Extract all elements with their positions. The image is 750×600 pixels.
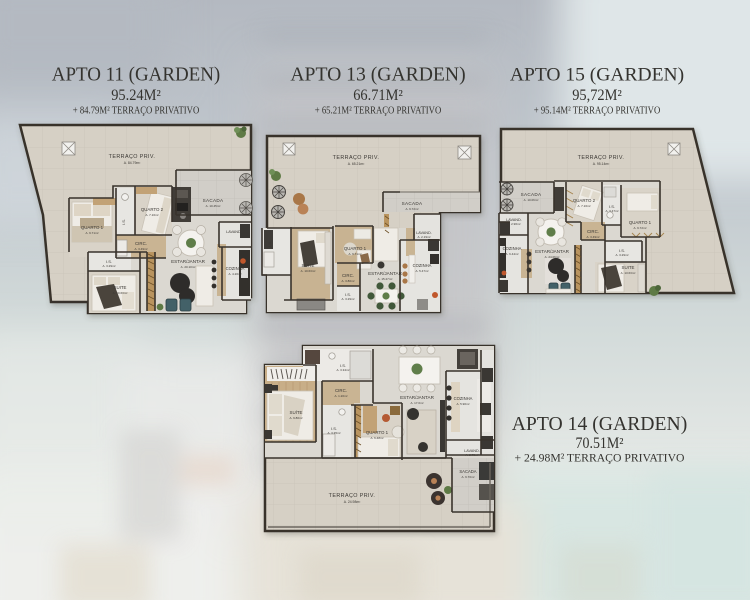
svg-text:A. 6.44m²: A. 6.44m² (505, 252, 518, 256)
svg-text:A. 9.71m²: A. 9.71m² (85, 231, 98, 235)
svg-text:TERRAÇO PRIV.: TERRAÇO PRIV. (329, 493, 376, 499)
svg-text:TERRAÇO PRIV.: TERRAÇO PRIV. (109, 154, 156, 160)
svg-text:QUARTO 1: QUARTO 1 (366, 430, 389, 435)
svg-text:A. 3.29m²: A. 3.29m² (615, 253, 628, 257)
svg-text:95.24M²: 95.24M² (111, 88, 161, 105)
svg-text:QUARTO 1: QUARTO 1 (629, 220, 652, 225)
svg-text:SACADA: SACADA (459, 469, 476, 474)
svg-text:QUARTO 2: QUARTO 2 (573, 198, 596, 203)
svg-text:SUITE: SUITE (622, 265, 635, 270)
svg-text:APTO 13 (GARDEN): APTO 13 (GARDEN) (290, 65, 465, 86)
svg-text:ESTAR/JANTAR: ESTAR/JANTAR (400, 395, 434, 400)
svg-text:A. 24.98m²: A. 24.98m² (344, 500, 361, 504)
svg-text:A. 65.21m²: A. 65.21m² (348, 162, 365, 166)
svg-text:CIRC.: CIRC. (335, 388, 347, 393)
svg-text:I.S.: I.S. (121, 219, 126, 225)
svg-text:A. 3.35m²: A. 3.35m² (327, 431, 340, 435)
svg-text:A. 7.16m²: A. 7.16m² (145, 213, 158, 217)
svg-text:QUARTO 1: QUARTO 1 (81, 225, 104, 230)
svg-text:CIRC.: CIRC. (587, 229, 599, 234)
svg-text:95,72M²: 95,72M² (572, 88, 622, 105)
svg-text:SACADA: SACADA (203, 198, 224, 203)
svg-text:A. 10.45m²: A. 10.45m² (206, 204, 221, 208)
svg-text:ESTAR/JANTAR: ESTAR/JANTAR (368, 271, 402, 276)
svg-text:+ 24.98M² TERRAÇO PRIVATIVO: + 24.98M² TERRAÇO PRIVATIVO (515, 451, 685, 464)
svg-text:+ 95.14M² TERRAÇO PRIVATIVO: + 95.14M² TERRAÇO PRIVATIVO (534, 105, 661, 117)
svg-text:TERRAÇO PRIV.: TERRAÇO PRIV. (333, 155, 380, 161)
svg-text:A. 3.29m²: A. 3.29m² (102, 264, 115, 268)
svg-text:COZINHA: COZINHA (413, 263, 432, 268)
svg-text:COZINHA: COZINHA (454, 396, 473, 401)
svg-text:A. 5.47m²: A. 5.47m² (415, 269, 428, 273)
svg-text:A. 15.27m²: A. 15.27m² (378, 277, 393, 281)
svg-text:A. 17.0m²: A. 17.0m² (410, 401, 423, 405)
svg-text:COZINHA: COZINHA (503, 246, 522, 251)
svg-text:A. 3.47m²: A. 3.47m² (605, 209, 618, 213)
svg-text:+ 65.21M² TERRAÇO PRIVATIVO: + 65.21M² TERRAÇO PRIVATIVO (315, 105, 442, 117)
svg-text:A. 9.71m²: A. 9.71m² (348, 252, 361, 256)
svg-text:SACADA: SACADA (402, 201, 423, 206)
svg-text:A. 6.48m²: A. 6.48m² (370, 436, 383, 440)
svg-text:A. 13.63m²: A. 13.63m² (621, 271, 636, 275)
svg-text:A. 9.72m²: A. 9.72m² (633, 226, 646, 230)
svg-text:ESTAR/JANTAR: ESTAR/JANTAR (535, 249, 569, 254)
svg-text:LAVAND.: LAVAND. (226, 230, 242, 234)
svg-text:A. 1.20m²: A. 1.20m² (334, 394, 347, 398)
svg-text:A. 10.06m²: A. 10.06m² (524, 198, 539, 202)
svg-text:A. 10.63m²: A. 10.63m² (113, 291, 128, 295)
svg-text:SUÍTE: SUÍTE (290, 410, 303, 415)
svg-text:COZINHA: COZINHA (226, 266, 245, 271)
svg-text:A. 24.06m²: A. 24.06m² (545, 255, 560, 259)
svg-text:A. 9.72m²: A. 9.72m² (405, 207, 418, 211)
svg-text:A. 2.96m²: A. 2.96m² (507, 222, 520, 226)
svg-text:70.51M²: 70.51M² (576, 435, 624, 452)
svg-text:A. 7.16m²: A. 7.16m² (577, 204, 590, 208)
svg-text:CIRC.: CIRC. (135, 241, 147, 246)
svg-text:A. 3.29m²: A. 3.29m² (341, 297, 354, 301)
svg-text:+ 84.79M² TERRAÇO PRIVATIVO: + 84.79M² TERRAÇO PRIVATIVO (73, 105, 200, 117)
svg-text:A. 3.49m²: A. 3.49m² (134, 247, 147, 251)
svg-text:APTO 14 (GARDEN): APTO 14 (GARDEN) (512, 413, 688, 435)
svg-text:A. 4.20m²: A. 4.20m² (228, 272, 241, 276)
svg-text:I.S.: I.S. (267, 241, 272, 247)
svg-text:SUITE: SUITE (302, 263, 315, 268)
svg-text:A. 3.34m²: A. 3.34m² (336, 368, 349, 372)
svg-text:QUARTO 1: QUARTO 1 (344, 246, 367, 251)
svg-text:A. 2.79m²: A. 2.79m² (465, 453, 478, 457)
svg-text:A. 2.19m²: A. 2.19m² (417, 235, 430, 239)
svg-text:A. 3.80m²: A. 3.80m² (341, 279, 354, 283)
svg-text:APTO 11 (GARDEN): APTO 11 (GARDEN) (52, 64, 220, 85)
svg-text:A. 84.79m²: A. 84.79m² (124, 161, 141, 165)
svg-text:A. 9.80m²: A. 9.80m² (289, 416, 302, 420)
svg-text:TERRAÇO PRIV.: TERRAÇO PRIV. (578, 155, 625, 161)
svg-text:QUARTO 2: QUARTO 2 (141, 207, 164, 212)
svg-text:A. 9.70m²: A. 9.70m² (461, 475, 474, 479)
svg-text:APTO 15 (GARDEN): APTO 15 (GARDEN) (510, 65, 684, 86)
svg-text:A. 95.14m²: A. 95.14m² (593, 162, 610, 166)
svg-text:ESTAR/JANTAR: ESTAR/JANTAR (171, 259, 205, 264)
svg-text:A. 10.63m²: A. 10.63m² (301, 269, 316, 273)
svg-text:SUITE: SUITE (114, 285, 127, 290)
svg-text:A. 3.49m²: A. 3.49m² (586, 235, 599, 239)
svg-text:66.71M²: 66.71M² (353, 88, 403, 105)
svg-text:A. 5.90m²: A. 5.90m² (456, 402, 469, 406)
svg-text:CIRC.: CIRC. (342, 273, 354, 278)
svg-text:SACADA: SACADA (521, 192, 542, 197)
svg-text:A. 20.10m²: A. 20.10m² (181, 265, 196, 269)
